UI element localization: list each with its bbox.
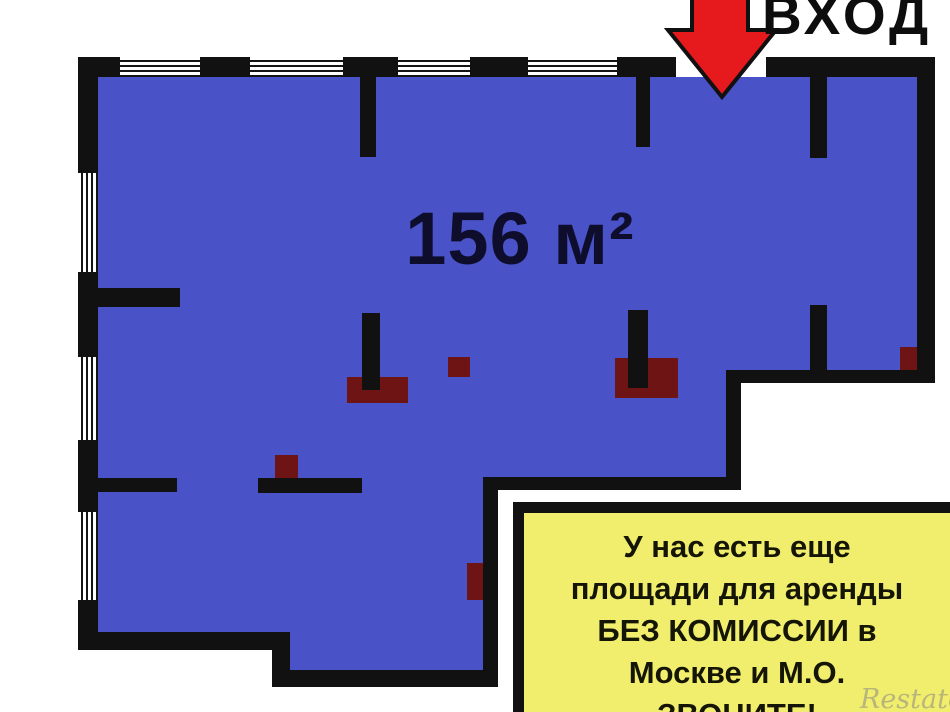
window-segment <box>78 357 98 440</box>
window-segment <box>78 512 98 600</box>
interior-wall <box>810 77 827 158</box>
plumbing-fixture <box>448 357 470 377</box>
area-label: 156 м² <box>320 196 720 281</box>
window-segment <box>528 57 617 77</box>
watermark: Restate <box>860 684 950 712</box>
interior-wall <box>258 478 362 493</box>
interior-wall <box>98 478 177 492</box>
plumbing-fixture <box>275 455 298 478</box>
window-segment <box>78 173 98 272</box>
entrance-label: ВХОД <box>762 0 932 47</box>
floor-plan-page: 156 м² ВХОД У нас есть еще площади для а… <box>0 0 950 712</box>
plumbing-fixture <box>467 563 483 600</box>
interior-wall <box>98 288 180 307</box>
interior-wall <box>362 313 380 390</box>
info-note-box: У нас есть еще площади для аренды БЕЗ КО… <box>513 502 950 712</box>
interior-wall <box>360 77 376 157</box>
window-segment <box>250 57 343 77</box>
interior-wall <box>628 310 648 388</box>
interior-wall <box>636 77 650 147</box>
interior-wall <box>810 305 827 370</box>
plumbing-fixture <box>900 347 917 370</box>
entrance-doorway-gap <box>676 52 766 77</box>
window-segment <box>398 57 470 77</box>
info-line: БЕЗ КОМИССИИ в <box>524 610 950 652</box>
info-note-text: У нас есть еще площади для аренды БЕЗ КО… <box>524 513 950 712</box>
window-segment <box>120 57 200 77</box>
info-line: площади для аренды <box>524 568 950 610</box>
info-line: У нас есть еще <box>524 526 950 568</box>
